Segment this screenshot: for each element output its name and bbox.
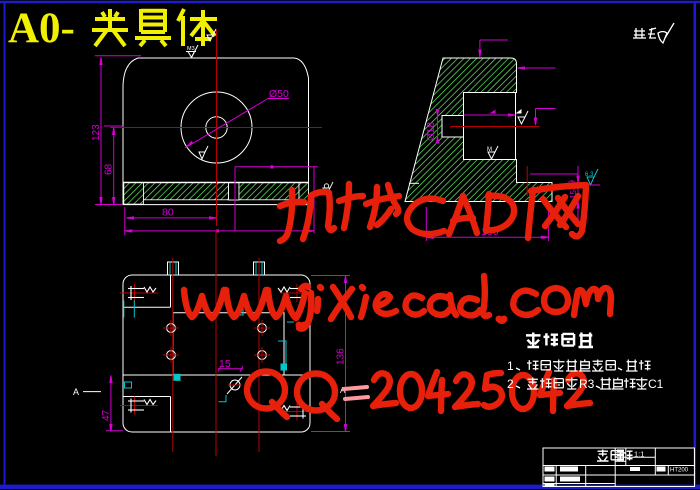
svg-text:1: 1 [507, 359, 514, 373]
svg-text:68: 68 [104, 163, 115, 175]
svg-text:136: 136 [336, 348, 347, 365]
svg-text:123: 123 [91, 124, 102, 141]
svg-text:80: 80 [162, 207, 174, 219]
svg-text:M: M [487, 147, 492, 153]
svg-text:A0-: A0- [8, 5, 75, 52]
svg-text:6.3: 6.3 [585, 172, 594, 178]
svg-text:47: 47 [101, 409, 112, 421]
svg-text:1:1: 1:1 [634, 450, 644, 459]
svg-text:Ø50: Ø50 [269, 88, 289, 100]
svg-text:M3: M3 [187, 46, 195, 52]
svg-text:2: 2 [507, 377, 514, 391]
svg-text:R3: R3 [579, 377, 595, 391]
svg-text:C1: C1 [648, 377, 664, 391]
svg-text:A: A [73, 387, 79, 397]
svg-text:HT200: HT200 [670, 468, 689, 474]
svg-text:Ø18: Ø18 [426, 122, 437, 141]
svg-text:15: 15 [219, 358, 231, 370]
